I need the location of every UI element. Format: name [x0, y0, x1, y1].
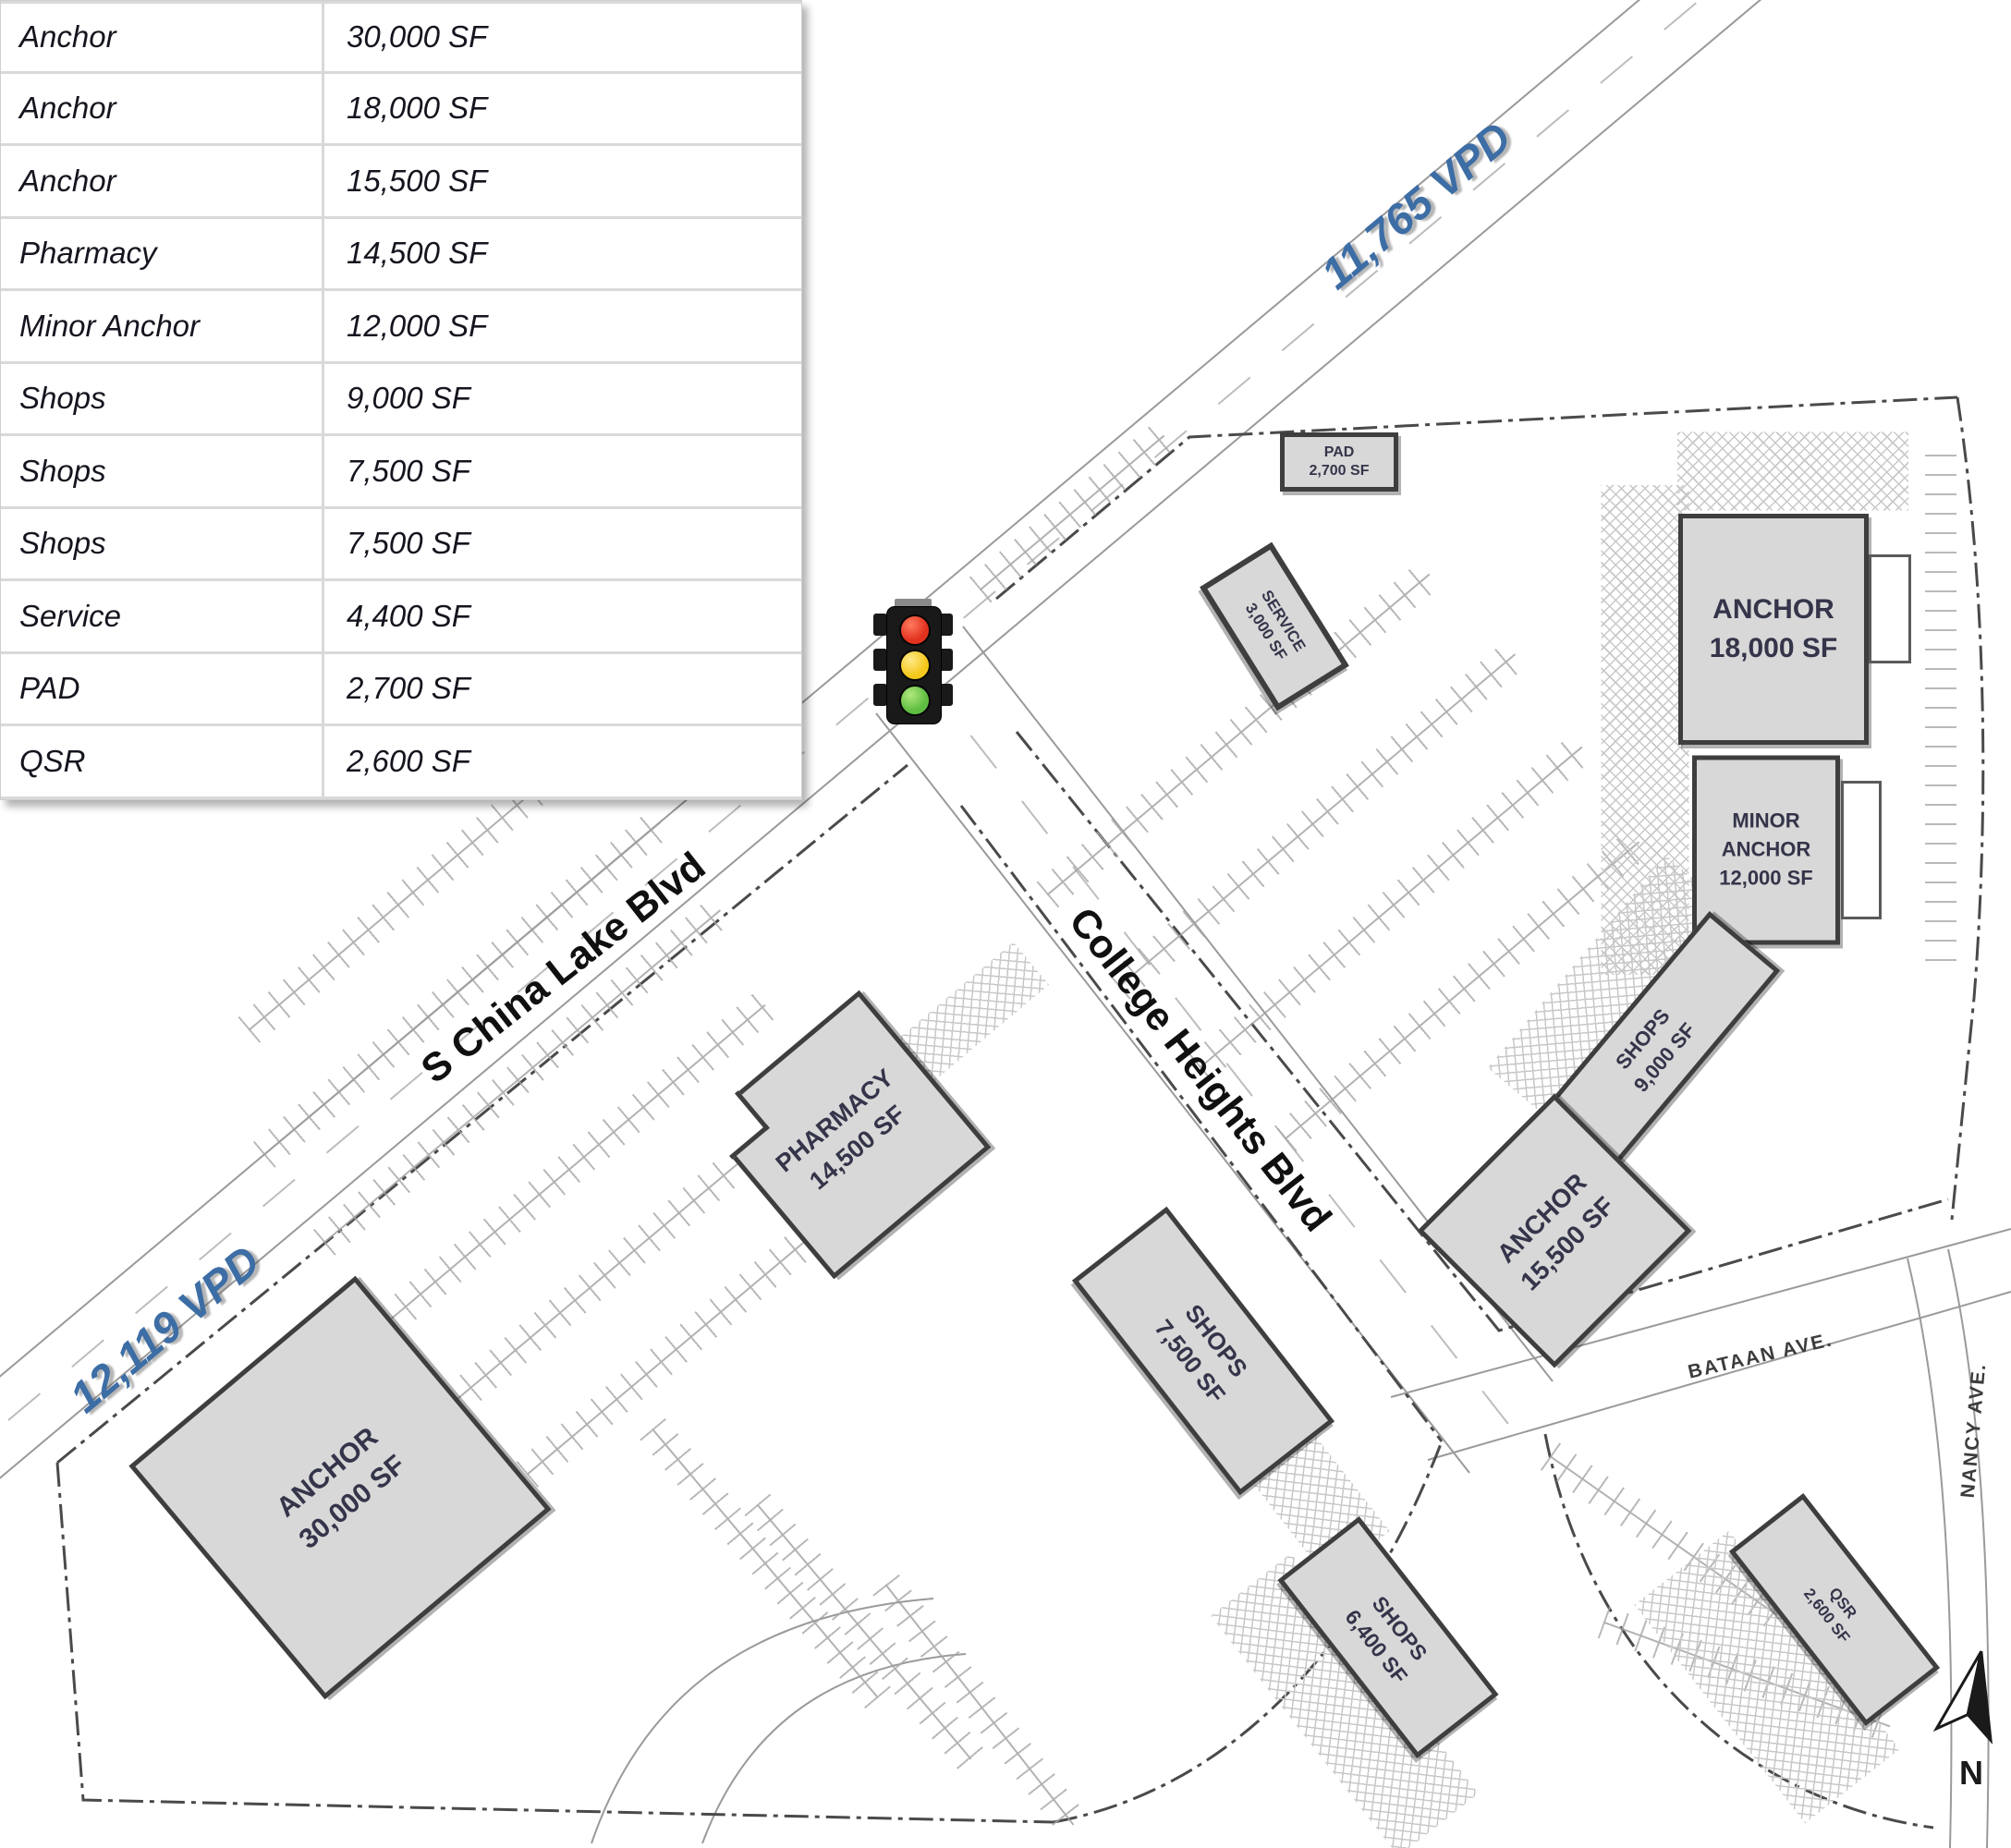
red-light [899, 614, 931, 646]
tenant-size-cell: 9,000 SF [324, 364, 470, 434]
table-row: Minor Anchor 12,000 SF [1, 291, 801, 364]
tenant-size-cell: 2,700 SF [324, 654, 470, 724]
north-arrow: N [1932, 1645, 2011, 1783]
tenant-type-cell: Service [1, 581, 324, 651]
tenant-size-cell: 18,000 SF [324, 74, 487, 144]
table-row: PAD 2,700 SF [1, 654, 801, 727]
building-size: 12,000 SF [1719, 864, 1813, 893]
table-row: Shops 9,000 SF [1, 364, 801, 437]
tenant-size-cell: 2,600 SF [324, 726, 470, 796]
tenant-type-cell: Anchor [1, 74, 324, 144]
loading-dock [1869, 554, 1911, 663]
tenant-type-cell: Minor Anchor [1, 291, 324, 361]
traffic-light-body [886, 606, 942, 724]
tenant-type-cell: Anchor [1, 4, 324, 71]
table-row: Pharmacy 14,500 SF [1, 219, 801, 292]
building-anchor-18000: ANCHOR 18,000 SF [1678, 514, 1869, 745]
tenant-type-cell: Shops [1, 364, 324, 434]
parking-row [1925, 444, 1956, 961]
tenant-type-cell: Anchor [1, 146, 324, 216]
table-row: Shops 7,500 SF [1, 509, 801, 582]
site-plan-page: ANCHOR 30,000 SF PHARMACY 14,500 SF SHOP… [0, 0, 2011, 1848]
traffic-light-icon [871, 599, 956, 728]
sidewalk-hatch [1677, 432, 1908, 511]
yellow-light [899, 650, 931, 681]
tenant-size-cell: 7,500 SF [324, 509, 470, 579]
table-row: Anchor 30,000 SF [1, 1, 801, 74]
tenant-size-cell: 7,500 SF [324, 436, 470, 506]
table-row: QSR 2,600 SF [1, 726, 801, 799]
loading-dock [1841, 781, 1882, 919]
building-label: ANCHOR [1712, 590, 1834, 629]
traffic-light-visor [873, 614, 887, 636]
legend-table: Anchor 30,000 SF Anchor 18,000 SF Anchor… [0, 0, 802, 800]
table-row: Service 4,400 SF [1, 581, 801, 654]
green-light [899, 685, 931, 716]
tenant-size-cell: 15,500 SF [324, 146, 487, 216]
tenant-type-cell: PAD [1, 654, 324, 724]
building-size: 18,000 SF [1710, 629, 1837, 668]
tenant-size-cell: 12,000 SF [324, 291, 487, 361]
traffic-light-visor [873, 649, 887, 671]
tenant-type-cell: Shops [1, 509, 324, 579]
building-label: PAD [1324, 444, 1355, 462]
north-arrow-icon [1932, 1645, 2011, 1756]
table-row: Anchor 15,500 SF [1, 146, 801, 219]
building-label: ANCHOR [1722, 836, 1811, 865]
tenant-type-cell: QSR [1, 726, 324, 796]
table-row: Anchor 18,000 SF [1, 74, 801, 147]
tenant-type-cell: Shops [1, 436, 324, 506]
tenant-size-cell: 4,400 SF [324, 581, 470, 651]
tenant-type-cell: Pharmacy [1, 219, 324, 289]
building-label: MINOR [1732, 808, 1799, 836]
north-label: N [1959, 1754, 1983, 1793]
table-row: Shops 7,500 SF [1, 436, 801, 509]
tenant-size-cell: 30,000 SF [324, 4, 487, 71]
tenant-size-cell: 14,500 SF [324, 219, 487, 289]
building-pad: PAD 2,700 SF [1280, 432, 1398, 492]
building-size: 2,700 SF [1310, 462, 1370, 480]
traffic-light-visor [873, 684, 887, 706]
